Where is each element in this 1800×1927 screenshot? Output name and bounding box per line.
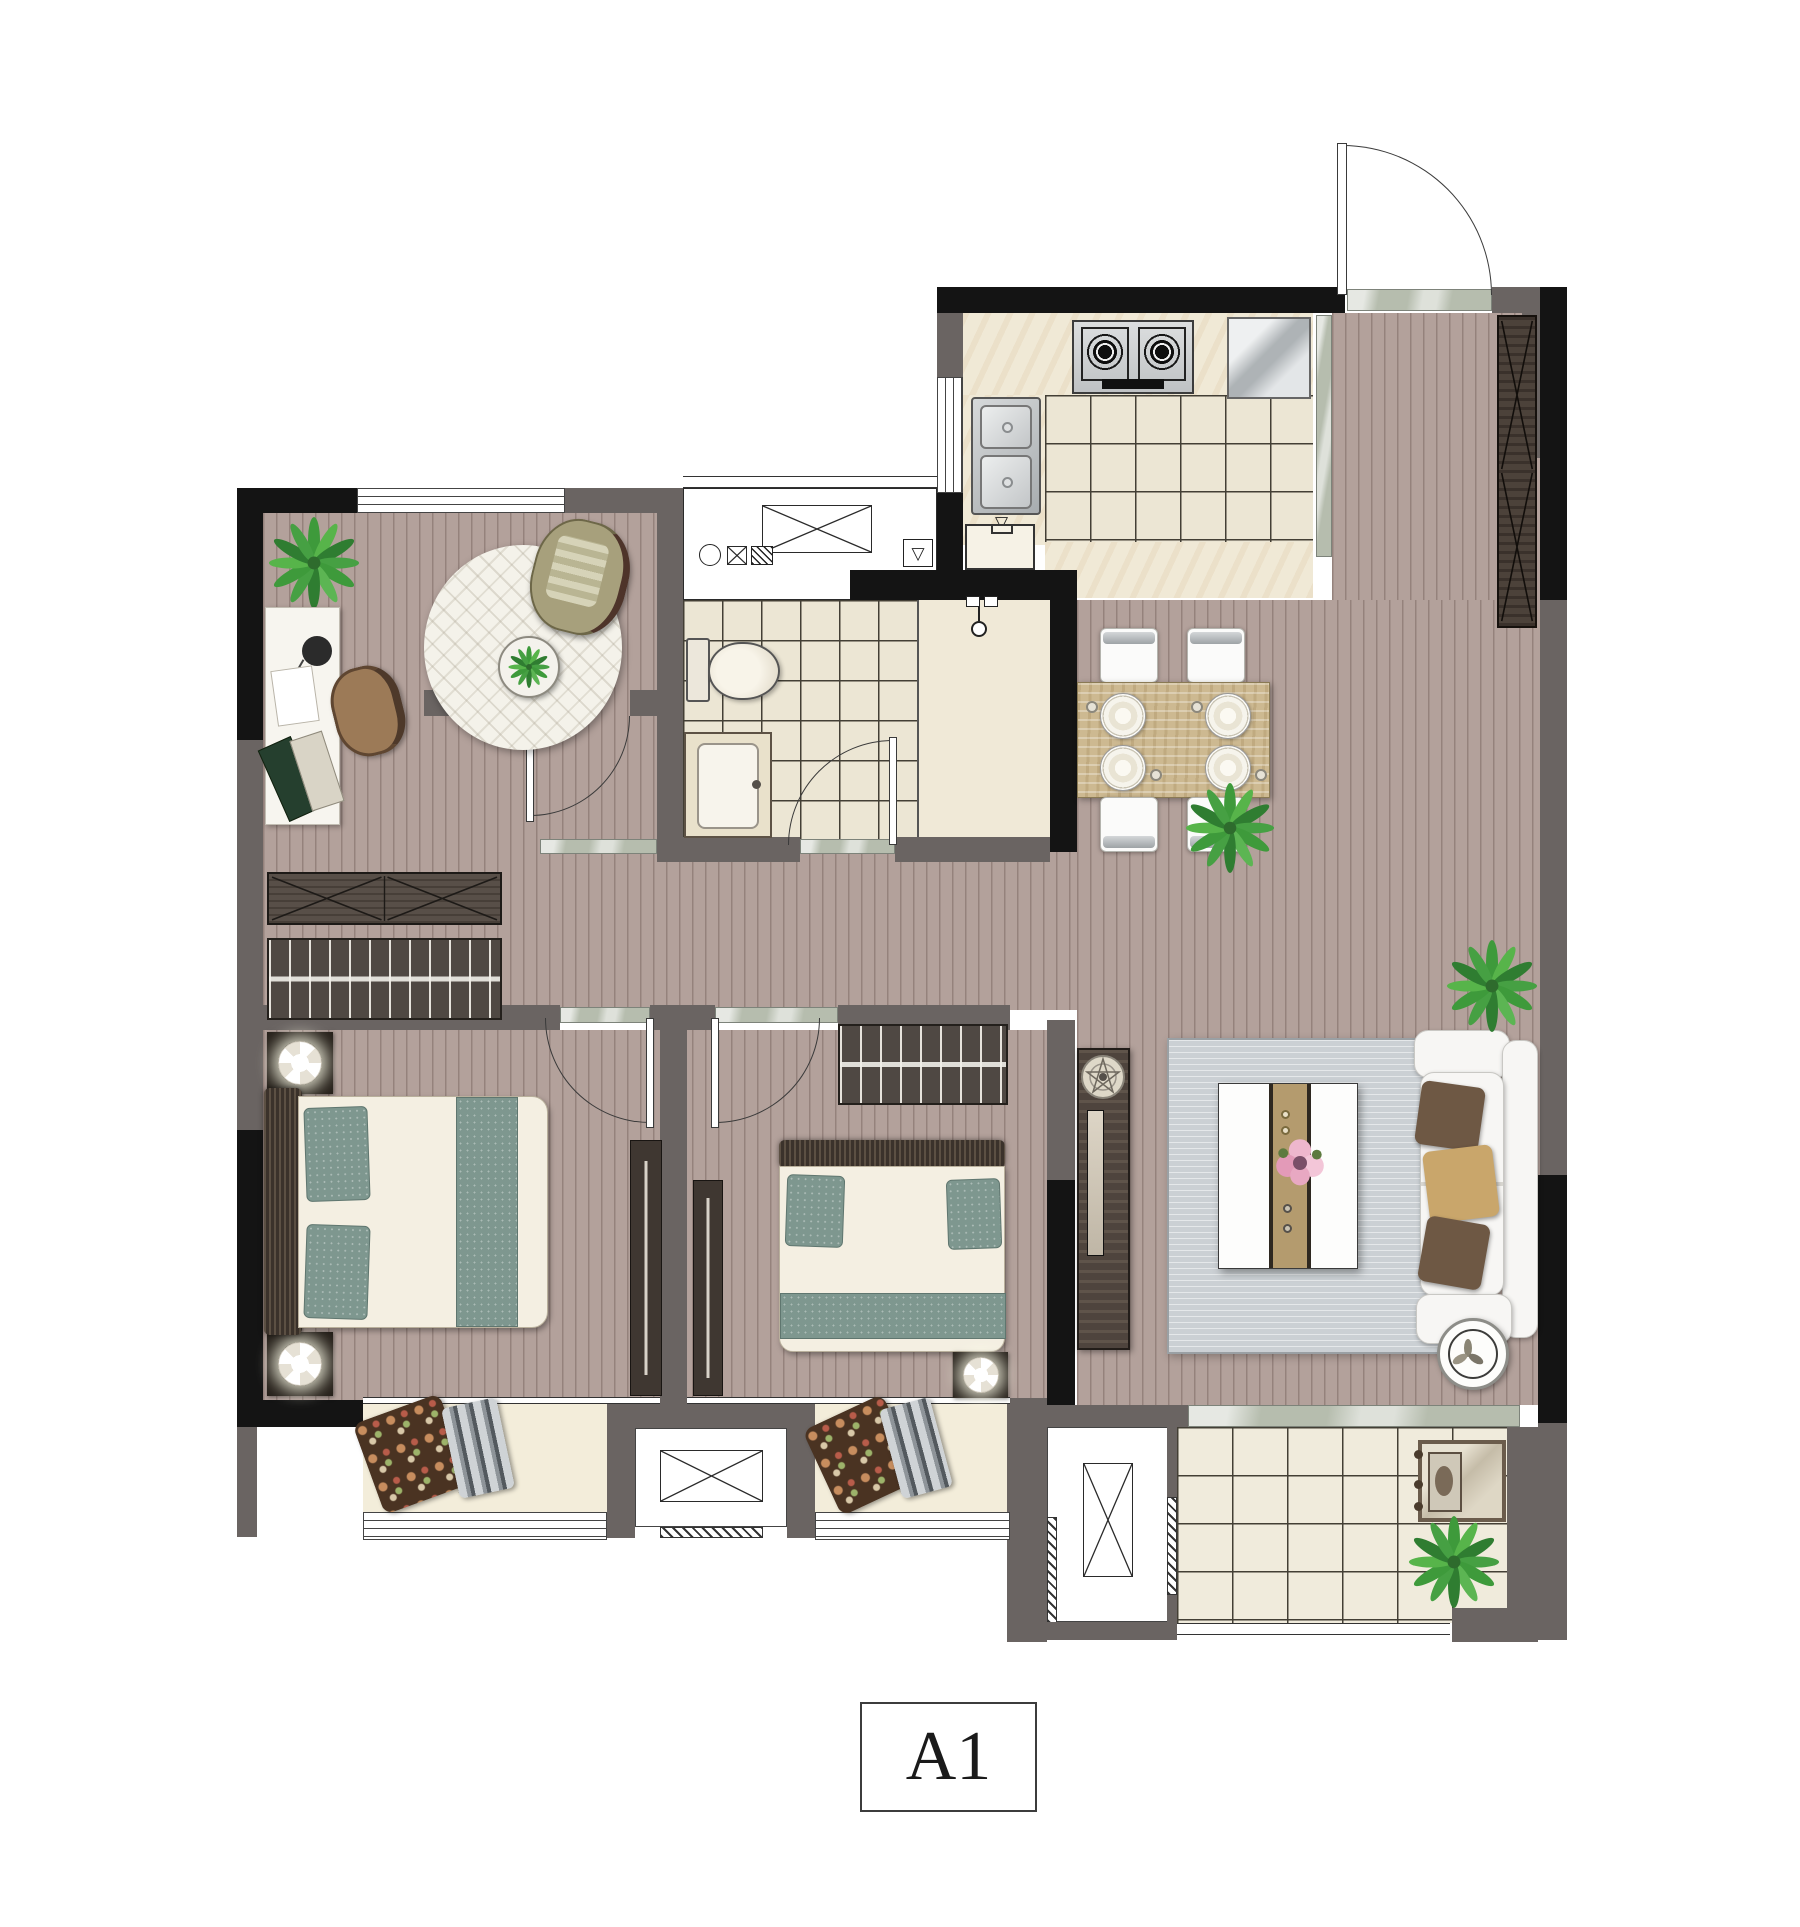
wall-segment xyxy=(1538,1175,1567,1425)
under-sink-cabinet xyxy=(965,524,1035,570)
wall-segment xyxy=(1452,1608,1538,1642)
kitchen-sliding-door xyxy=(1316,315,1332,557)
entry-shoe-cabinet xyxy=(1497,315,1537,628)
window xyxy=(357,488,565,513)
table-lamp-icon xyxy=(278,1041,322,1085)
railing-hatch xyxy=(1167,1497,1177,1595)
knob xyxy=(1414,1480,1423,1489)
ac-unit-cross-icon xyxy=(660,1450,763,1502)
ac-unit-cross-icon xyxy=(1083,1463,1133,1577)
sofa-pillow xyxy=(1414,1080,1486,1152)
bathroom-vanity xyxy=(684,732,772,838)
study-desk xyxy=(265,607,340,825)
wall-segment xyxy=(657,837,800,862)
decor-dot xyxy=(1283,1224,1292,1233)
entry-door-leaf xyxy=(1337,143,1347,295)
wall-segment xyxy=(1037,1622,1177,1640)
sink-basin xyxy=(980,455,1032,509)
wall-segment xyxy=(1167,1427,1177,1497)
bedroom1-window-line xyxy=(363,1397,660,1404)
wall-segment xyxy=(630,690,683,716)
window xyxy=(937,377,963,493)
kitchen-sink xyxy=(971,397,1041,515)
vanity-faucet-icon xyxy=(752,780,761,789)
toilet-bowl xyxy=(708,642,780,700)
wall-segment xyxy=(237,740,263,1130)
wall-segment xyxy=(1007,1398,1047,1642)
cup xyxy=(1150,769,1162,781)
kitchen-counter-bottom xyxy=(1045,542,1313,598)
potted-plant-icon xyxy=(1446,940,1538,1032)
laundry-cabinet xyxy=(1418,1440,1506,1522)
bed-runner xyxy=(456,1097,518,1327)
bed-pillow xyxy=(946,1178,1002,1250)
sofa-pillow xyxy=(1417,1215,1491,1291)
desk-papers xyxy=(270,665,319,726)
nightstand xyxy=(267,1032,333,1094)
bed-pillow xyxy=(785,1174,845,1248)
bedroom2-window-line xyxy=(687,1397,1010,1404)
burner-icon xyxy=(1081,327,1129,381)
range-hood xyxy=(1227,317,1311,399)
potted-plant-icon xyxy=(1185,783,1275,873)
wall-segment xyxy=(1540,600,1567,1177)
dining-chair xyxy=(1100,628,1158,683)
bed-pillow xyxy=(303,1224,370,1320)
dining-chair xyxy=(1100,797,1158,852)
railing-hatch xyxy=(660,1527,763,1538)
decor-dot xyxy=(1283,1204,1292,1213)
bed-pillow xyxy=(303,1106,370,1202)
entry-door-swing-arc xyxy=(1342,145,1492,295)
wall-segment xyxy=(1047,1180,1075,1405)
cup xyxy=(1255,769,1267,781)
bed-headboard xyxy=(779,1140,1005,1168)
wall-segment xyxy=(1050,600,1077,852)
bathroom-door-leaf xyxy=(889,737,897,845)
tv-screen xyxy=(1087,1110,1104,1256)
wall-segment xyxy=(937,493,963,572)
double-bed xyxy=(779,1166,1005,1352)
sofa-armrest xyxy=(1414,1030,1510,1078)
corridor-threshold xyxy=(540,839,657,854)
double-bed xyxy=(298,1096,548,1328)
decor-dot xyxy=(1281,1126,1290,1135)
dresser xyxy=(693,1180,723,1396)
desk-lamp-icon xyxy=(302,636,332,666)
vanity-sink xyxy=(697,743,759,829)
living-balcony-railing xyxy=(1177,1623,1450,1635)
floor-plan-page: { "unit_label": { "text": "A1" }, "symbo… xyxy=(0,0,1800,1927)
gas-stove xyxy=(1072,320,1194,394)
place-setting-plate xyxy=(1100,693,1146,739)
floor-drain-icon: ▽ xyxy=(903,539,933,567)
bed-runner xyxy=(780,1293,1006,1339)
sofa-back xyxy=(1502,1040,1538,1338)
flower-bouquet-icon xyxy=(1272,1135,1328,1191)
living-balcony-sliding-door xyxy=(1188,1405,1520,1427)
table-plant-icon xyxy=(508,646,550,688)
kitchen-tile-floor xyxy=(1045,395,1313,542)
wall-segment xyxy=(237,1130,263,1427)
pipe-riser-hatch-icon xyxy=(751,546,773,565)
wall-segment xyxy=(937,313,963,377)
round-side-table xyxy=(1437,1318,1509,1390)
wall-segment xyxy=(895,837,1050,862)
laundry-basin xyxy=(1435,1466,1453,1496)
unit-label: A1 xyxy=(860,1702,1037,1812)
wall-segment xyxy=(1538,1423,1567,1640)
burner-icon xyxy=(1138,327,1186,381)
table-lamp-icon xyxy=(278,1342,322,1386)
nightstand xyxy=(953,1352,1008,1398)
window xyxy=(683,476,937,488)
wall-segment xyxy=(850,570,1077,600)
balcony2-railing xyxy=(815,1512,1010,1540)
wall-segment xyxy=(237,488,357,513)
wall-segment xyxy=(237,488,263,740)
wall-segment xyxy=(937,287,1345,313)
sofa-pillow xyxy=(1422,1144,1500,1224)
shower-fixture-icon xyxy=(966,596,1000,638)
decor-dot xyxy=(1281,1110,1290,1119)
wall-segment xyxy=(237,1427,257,1537)
open-wardrobe-hangers xyxy=(267,938,502,1020)
balcony1-railing xyxy=(363,1512,607,1540)
wall-segment xyxy=(660,1030,687,1400)
wall-segment xyxy=(607,1428,635,1538)
wall-segment xyxy=(1492,287,1540,313)
wall-segment xyxy=(1047,1405,1188,1427)
potted-plant-icon xyxy=(1408,1516,1500,1608)
railing-hatch xyxy=(1047,1517,1057,1623)
place-setting-plate xyxy=(1100,745,1146,791)
knob xyxy=(1414,1450,1423,1459)
bedroom1-door-leaf xyxy=(646,1018,654,1128)
bedroom2-door-leaf xyxy=(711,1018,719,1128)
wall-segment xyxy=(1167,1595,1177,1622)
cup xyxy=(1191,701,1203,713)
stove-control-bar xyxy=(1102,379,1164,389)
dining-table xyxy=(1077,682,1270,798)
wardrobe-hangers xyxy=(838,1024,1008,1105)
place-setting-plate xyxy=(1205,693,1251,739)
pipe-riser-cross-icon xyxy=(727,546,747,565)
wall-segment xyxy=(650,1005,715,1030)
pipe-riser-circle-icon xyxy=(699,544,721,566)
sink-basin xyxy=(980,405,1032,449)
bed-headboard xyxy=(264,1088,302,1335)
potted-plant-icon xyxy=(268,517,360,609)
dresser xyxy=(630,1140,662,1396)
cup xyxy=(1086,701,1098,713)
storage-cabinet xyxy=(267,872,502,925)
nightstand xyxy=(267,1332,333,1396)
duct-cross-icon xyxy=(762,505,872,553)
toilet-tank xyxy=(686,638,710,702)
unit-label-text: A1 xyxy=(906,1717,992,1797)
knob xyxy=(1414,1502,1423,1511)
wall-segment xyxy=(657,488,683,850)
wall-segment xyxy=(1047,1020,1075,1182)
table-lamp-icon xyxy=(963,1357,999,1393)
wall-segment xyxy=(1540,287,1567,602)
wall-segment xyxy=(237,1400,363,1427)
dining-chair xyxy=(1187,628,1245,683)
decor-plate-icon xyxy=(1079,1053,1127,1101)
